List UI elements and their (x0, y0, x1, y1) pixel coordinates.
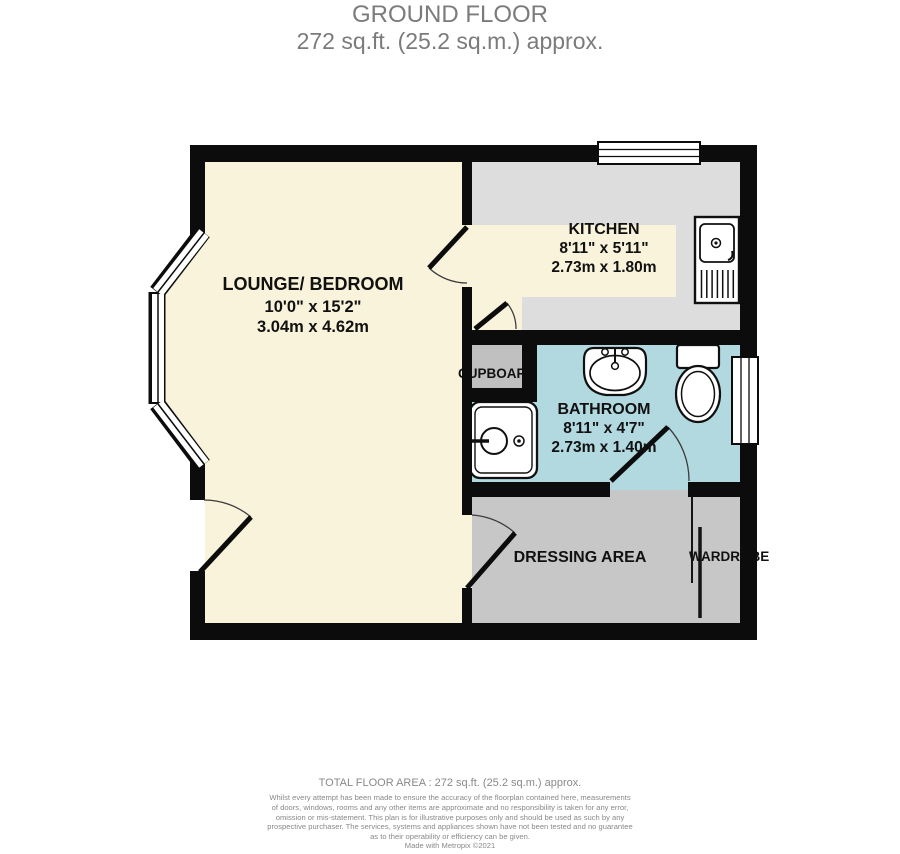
floorplan-page: GROUND FLOOR 272 sq.ft. (25.2 sq.m.) app… (0, 0, 900, 854)
shower-tray-icon (468, 402, 537, 478)
kitchen-dim-imperial: 8'11" x 5'11" (559, 240, 648, 257)
disclaimer-line: of doors, windows, rooms and any other i… (0, 803, 900, 813)
disclaimer-line: as to their operability or efficiency ca… (0, 832, 900, 842)
dressing-area-label: DRESSING AREA (514, 549, 647, 566)
basin-icon (584, 348, 646, 395)
lounge-label: LOUNGE/ BEDROOM (222, 274, 403, 294)
kitchen-window (598, 142, 700, 164)
lounge-dim-imperial: 10'0" x 15'2" (265, 298, 362, 316)
kitchen-label: KITCHEN (568, 221, 639, 238)
disclaimer-line: prospective purchaser. The services, sys… (0, 822, 900, 832)
bathroom-dim-imperial: 8'11" x 4'7" (563, 420, 645, 437)
kitchen-dim-metric: 2.73m x 1.80m (551, 259, 656, 276)
toilet-icon (676, 345, 720, 422)
wardrobe-label: WARDROBE (689, 549, 769, 564)
bathroom-window (732, 357, 758, 444)
lounge-dim-metric: 3.04m x 4.62m (257, 318, 369, 336)
lounge-floor (158, 162, 472, 623)
room-floors (158, 162, 740, 623)
disclaimer-line: omission or mis-statement. This plan is … (0, 813, 900, 823)
disclaimer-line: Made with Metropix ©2021 (0, 841, 900, 851)
kitchen-sink-icon (695, 217, 739, 303)
disclaimer-line: Whilst every attempt has been made to en… (0, 793, 900, 803)
plan-footer: TOTAL FLOOR AREA : 272 sq.ft. (25.2 sq.m… (0, 777, 900, 851)
bathroom-label: BATHROOM (557, 401, 650, 418)
bathroom-dim-metric: 2.73m x 1.40m (551, 439, 656, 456)
total-floor-area: TOTAL FLOOR AREA : 272 sq.ft. (25.2 sq.m… (0, 777, 900, 789)
floorplan-drawing: CUPBOARD WARDROBE (0, 0, 900, 854)
disclaimer: Whilst every attempt has been made to en… (0, 793, 900, 851)
